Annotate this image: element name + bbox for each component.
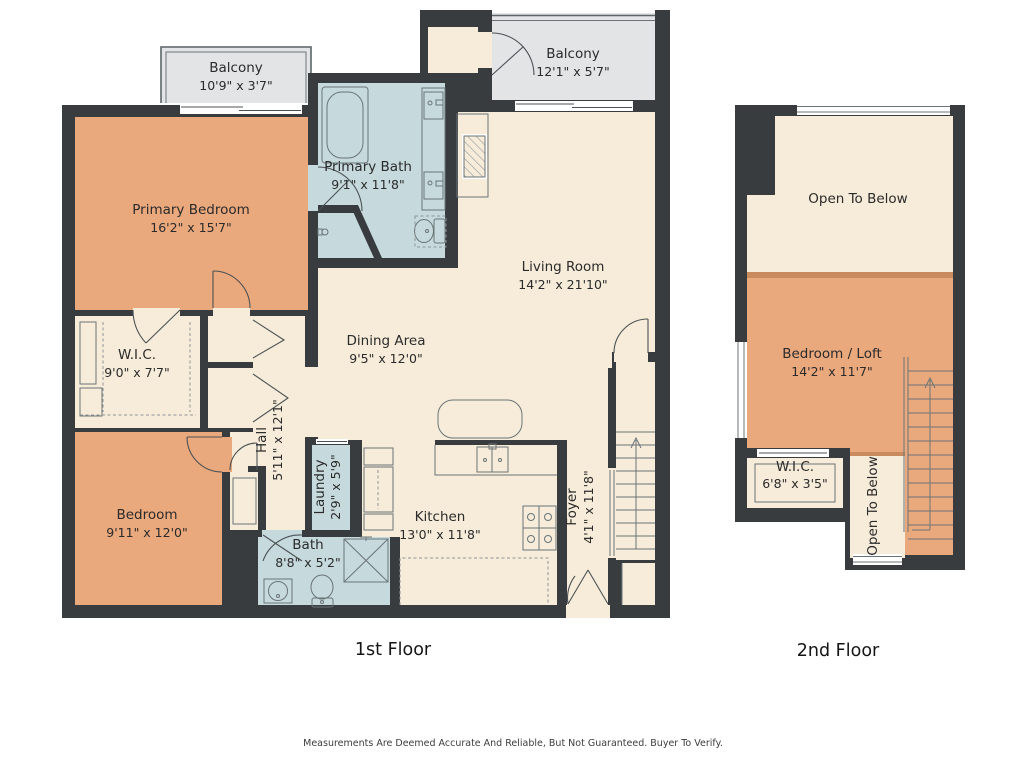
primary-bedroom-label: Primary Bedroom	[132, 202, 250, 218]
laundry-label: Laundry	[312, 459, 328, 514]
foyer-dims: 4'1" x 11'8"	[581, 470, 596, 543]
window-icon	[797, 104, 950, 115]
kitchen-dims: 13'0" x 11'8"	[399, 527, 480, 542]
foyer-label: Foyer	[564, 488, 580, 526]
balcony-right-label: Balcony	[546, 46, 600, 62]
laundry-door-icon	[316, 439, 348, 444]
wic-second-dims: 6'8" x 3'5"	[762, 476, 828, 491]
second-floor-title: 2nd Floor	[797, 641, 880, 661]
kitchen-passage	[362, 438, 435, 448]
wic-dims: 9'0" x 7'7"	[104, 365, 170, 380]
laundry-dims: 2'9" x 5'9"	[328, 454, 343, 520]
primary-bath-label: Primary Bath	[324, 159, 412, 175]
first-floor-plan: Balcony 10'9" x 3'7" Balcony 12'1" x 5'7…	[62, 10, 670, 618]
bath-label: Bath	[292, 537, 323, 553]
open-to-below-bottom-label: Open To Below	[865, 456, 881, 555]
bedroom-label: Bedroom	[116, 507, 177, 523]
hall-closet	[208, 368, 253, 428]
slider-door-icon	[180, 104, 302, 114]
loft-edge-rail	[850, 452, 905, 456]
disclaimer-text: Measurements Are Deemed Accurate And Rel…	[303, 738, 723, 749]
balcony-right-dims: 12'1" x 5'7"	[536, 64, 609, 79]
dining-area-dims: 9'5" x 12'0"	[349, 351, 422, 366]
door-opening	[478, 32, 492, 68]
balcony-left-label: Balcony	[209, 60, 263, 76]
dining-area-label: Dining Area	[347, 333, 426, 349]
loft-edge-rail	[747, 272, 953, 278]
open-to-below-top-label: Open To Below	[808, 191, 907, 207]
bath-dims: 8'8" x 5'2"	[275, 555, 341, 570]
kitchen-label: Kitchen	[415, 509, 466, 525]
bedroom-dims: 9'11" x 12'0"	[106, 525, 187, 540]
primary-bath-dims: 9'1" x 11'8"	[331, 177, 404, 192]
balcony-left-dims: 10'9" x 3'7"	[199, 78, 272, 93]
floorplan-canvas: Balcony 10'9" x 3'7" Balcony 12'1" x 5'7…	[0, 0, 1024, 768]
primary-bedroom-dims: 16'2" x 15'7"	[150, 220, 231, 235]
slider-door-icon	[515, 101, 633, 111]
second-floor-plan: Open To Below Bedroom / Loft 14'2" x 11'…	[735, 104, 965, 570]
hall-dims: 5'11" x 12'1"	[270, 399, 285, 480]
wic-second-label: W.I.C.	[776, 459, 814, 475]
hall-label: Hall	[254, 427, 270, 453]
wic-label: W.I.C.	[118, 347, 156, 363]
window-icon	[735, 342, 747, 438]
floorplan-page: Balcony 10'9" x 3'7" Balcony 12'1" x 5'7…	[0, 0, 1024, 768]
under-stair-closet	[622, 563, 655, 605]
living-room-dims: 14'2" x 21'10"	[518, 277, 607, 292]
stair-rail-gap	[608, 468, 616, 558]
bedroom-loft-label: Bedroom / Loft	[782, 346, 882, 362]
first-floor-title: 1st Floor	[355, 640, 432, 660]
living-room-label: Living Room	[522, 259, 605, 275]
bedroom-loft-dims: 14'2" x 11'7"	[791, 364, 872, 379]
wic-second-door-icon	[757, 449, 829, 457]
